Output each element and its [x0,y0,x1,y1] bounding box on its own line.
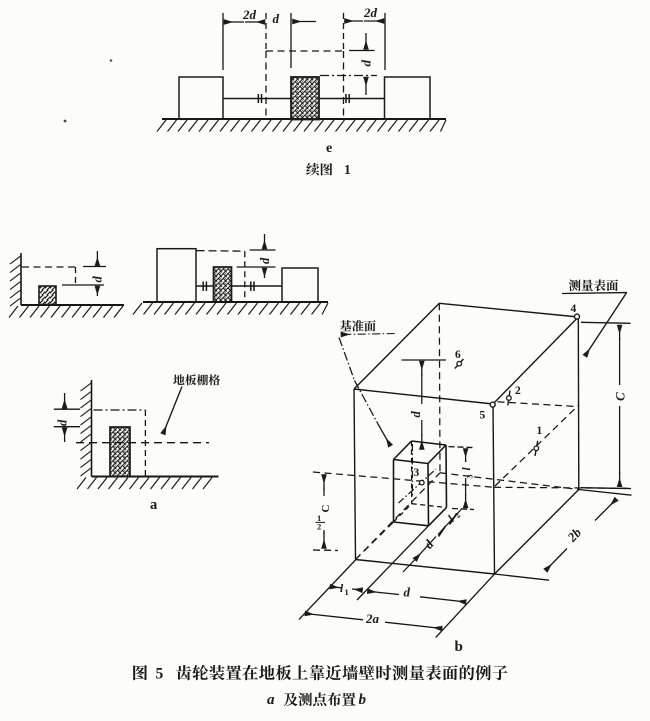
svg-text:1: 1 [537,425,543,437]
svg-text:a: a [150,497,158,513]
svg-text:b: b [359,692,367,708]
svg-text:3: 3 [466,475,475,479]
svg-text:d: d [404,585,411,600]
svg-text:d: d [359,60,374,67]
svg-text:2d: 2d [242,7,257,22]
svg-text:a: a [267,692,275,708]
svg-text:d: d [56,419,70,426]
svg-text:2d: 2d [363,5,378,20]
svg-text:d: d [91,276,105,283]
svg-text:2a: 2a [365,611,380,626]
svg-text:C: C [613,392,628,401]
svg-text:d: d [273,11,280,26]
svg-text:4: 4 [571,303,577,315]
svg-text:1: 1 [344,162,351,177]
svg-text:3: 3 [414,467,420,479]
svg-text:6: 6 [455,349,461,361]
svg-text:5: 5 [480,410,486,422]
svg-text:1: 1 [345,587,349,597]
svg-text:b: b [455,639,463,655]
svg-text:d: d [409,411,423,418]
svg-text:2: 2 [317,522,321,532]
svg-text:d: d [258,257,272,264]
svg-text:5: 5 [156,666,164,683]
svg-text:e: e [326,141,332,156]
svg-text:C: C [320,505,332,513]
svg-text:2: 2 [515,385,521,397]
